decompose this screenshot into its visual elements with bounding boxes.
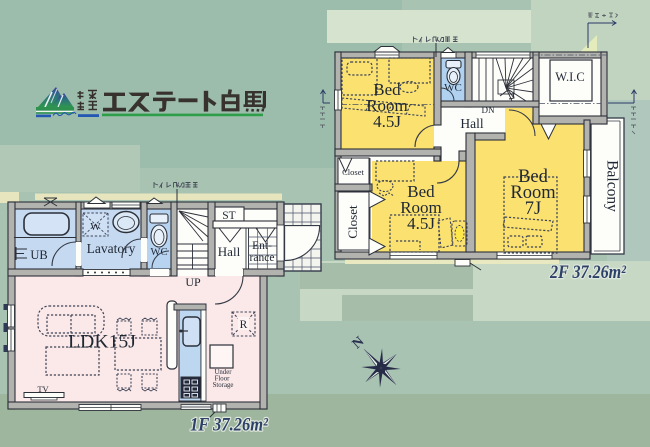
svg-text:Hall: Hall: [460, 116, 483, 131]
svg-text:DN: DN: [482, 105, 495, 115]
svg-text:UP: UP: [185, 275, 201, 289]
svg-text:2F 37.26m²: 2F 37.26m²: [549, 262, 627, 283]
svg-text:rance: rance: [250, 252, 275, 264]
svg-text:UB: UB: [30, 248, 47, 262]
svg-text:1F 37.26m²: 1F 37.26m²: [190, 415, 269, 436]
svg-text:W.I.C: W.I.C: [555, 70, 584, 84]
svg-text:Storage: Storage: [213, 382, 234, 389]
svg-text:4.5J: 4.5J: [373, 112, 401, 131]
svg-text:WC: WC: [444, 82, 462, 94]
svg-text:LDK15J: LDK15J: [68, 332, 136, 353]
svg-text:4.5J: 4.5J: [407, 214, 435, 233]
svg-text:Balcony: Balcony: [603, 160, 620, 212]
svg-text:Ent-: Ent-: [252, 240, 272, 252]
svg-text:WC: WC: [151, 247, 168, 258]
svg-text:Hall: Hall: [218, 244, 241, 259]
svg-text:R: R: [240, 319, 248, 331]
svg-text:Closet: Closet: [345, 205, 360, 239]
svg-text:W: W: [90, 221, 101, 233]
svg-text:ST: ST: [222, 210, 235, 222]
svg-text:7J: 7J: [525, 199, 541, 219]
